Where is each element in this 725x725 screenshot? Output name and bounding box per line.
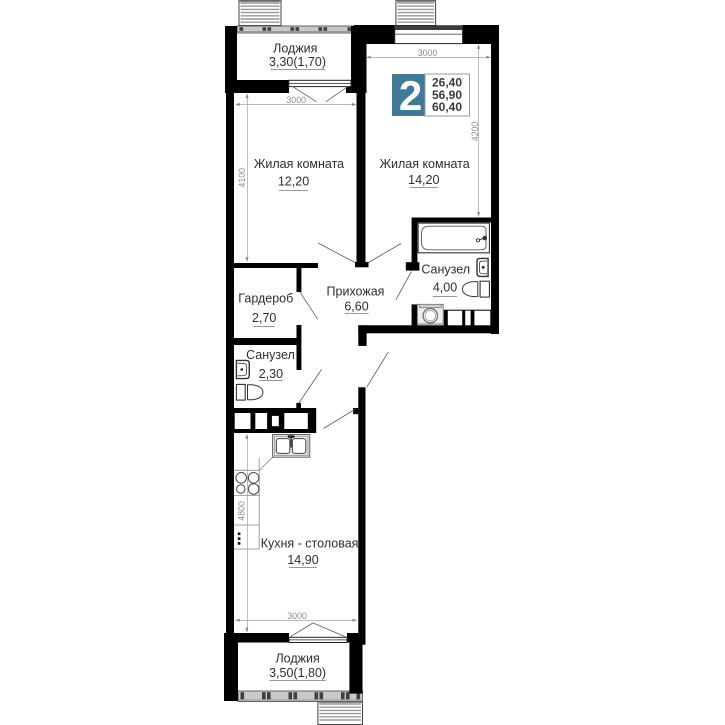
svg-text:Гардероб: Гардероб bbox=[238, 292, 293, 306]
svg-text:2: 2 bbox=[399, 72, 422, 119]
svg-text:Жилая комната: Жилая комната bbox=[254, 157, 344, 171]
svg-text:Лоджия: Лоджия bbox=[273, 42, 317, 56]
svg-text:3000: 3000 bbox=[286, 95, 306, 105]
svg-text:2,70: 2,70 bbox=[252, 311, 276, 325]
svg-text:Прихожая: Прихожая bbox=[327, 285, 385, 299]
svg-text:Кухня - столовая: Кухня - столовая bbox=[261, 537, 359, 551]
svg-text:3,50(1,80): 3,50(1,80) bbox=[269, 666, 326, 680]
svg-text:60,40: 60,40 bbox=[432, 100, 462, 114]
svg-text:3,30(1,70): 3,30(1,70) bbox=[269, 55, 326, 69]
svg-text:4800: 4800 bbox=[236, 501, 246, 521]
svg-text:4,00: 4,00 bbox=[433, 281, 457, 295]
svg-text:12,20: 12,20 bbox=[278, 175, 309, 189]
svg-text:3000: 3000 bbox=[418, 48, 438, 58]
svg-text:Жилая комната: Жилая комната bbox=[379, 157, 469, 171]
svg-text:14,90: 14,90 bbox=[287, 553, 318, 567]
svg-text:3000: 3000 bbox=[287, 611, 307, 621]
svg-text:Санузел: Санузел bbox=[246, 348, 295, 362]
svg-text:Санузел: Санузел bbox=[421, 263, 470, 277]
svg-text:14,20: 14,20 bbox=[408, 173, 439, 187]
svg-text:2,30: 2,30 bbox=[259, 367, 283, 381]
svg-text:4200: 4200 bbox=[470, 122, 480, 142]
svg-text:6,60: 6,60 bbox=[344, 300, 368, 314]
svg-text:Лоджия: Лоджия bbox=[275, 652, 319, 666]
svg-text:4100: 4100 bbox=[237, 168, 247, 188]
